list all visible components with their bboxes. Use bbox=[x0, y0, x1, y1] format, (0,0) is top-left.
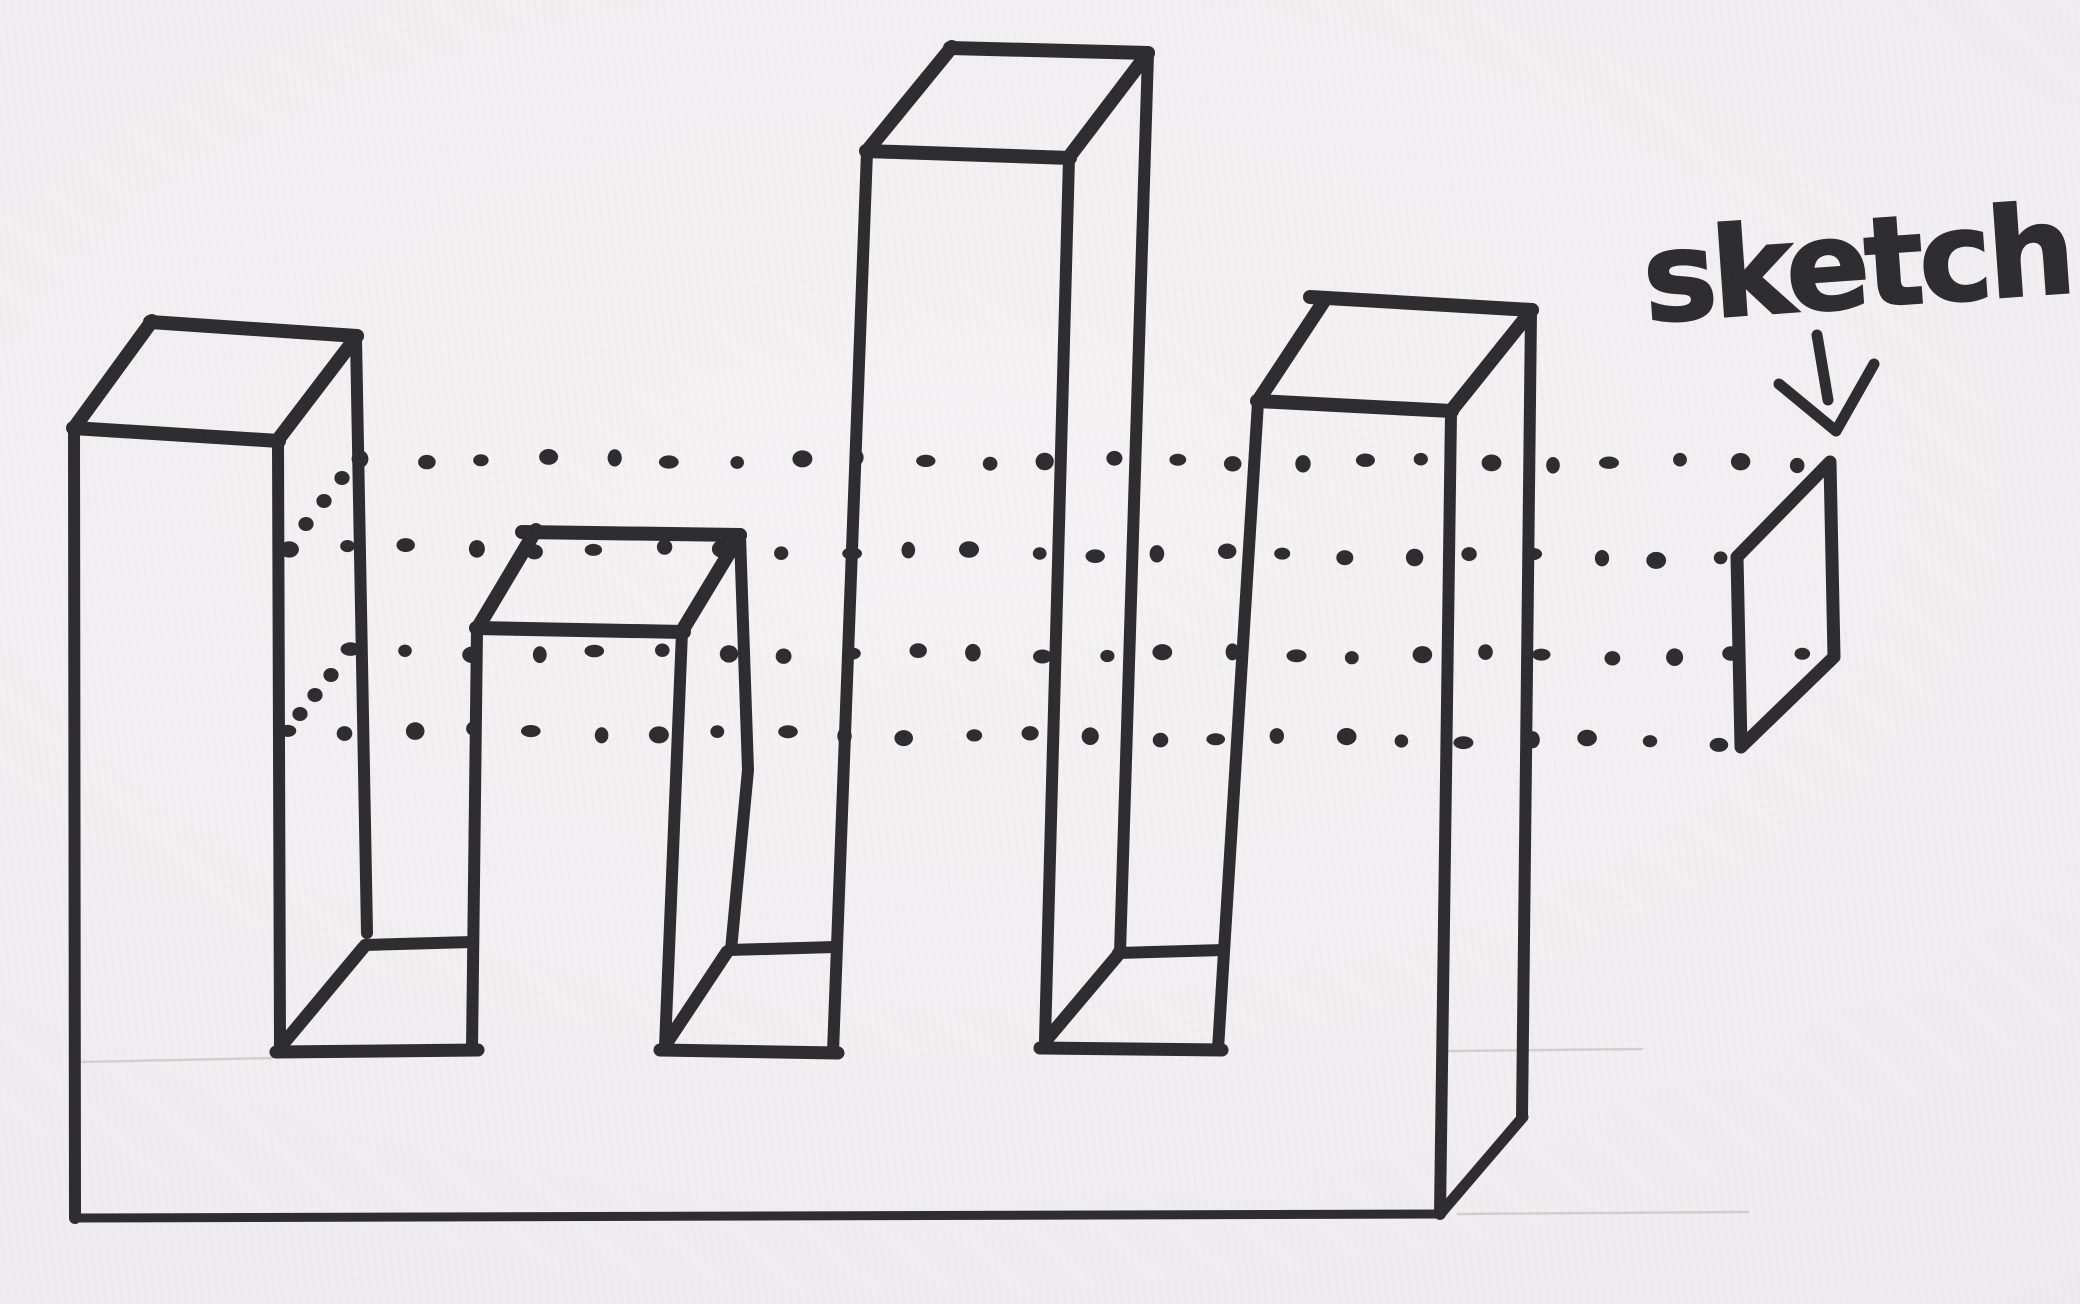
projection-dot bbox=[894, 730, 913, 746]
projection-dot bbox=[842, 547, 862, 559]
tower2-top-back-edge bbox=[522, 532, 740, 535]
projection-dot bbox=[1082, 727, 1099, 745]
tower4-top-back-edge bbox=[1310, 297, 1532, 310]
projection-dot bbox=[1206, 733, 1225, 745]
projection-dot bbox=[1673, 453, 1687, 467]
paper-background: sketch bbox=[0, 0, 2080, 1304]
tower2-front-left-edge bbox=[472, 629, 477, 1050]
projection-dot bbox=[659, 455, 679, 468]
projection-dot bbox=[910, 643, 927, 658]
projection-dot bbox=[1414, 453, 1428, 466]
notch3-floor-front-edge bbox=[1040, 1048, 1222, 1050]
tower4-front-right-and-base-right-edge bbox=[1440, 412, 1451, 1214]
projection-dot bbox=[1795, 648, 1811, 660]
projection-dot bbox=[526, 544, 543, 559]
projection-dot bbox=[1523, 548, 1542, 560]
projection-dot bbox=[352, 450, 369, 468]
projection-dot bbox=[1218, 544, 1236, 559]
projection-dot bbox=[1666, 648, 1683, 666]
notch2-floor-back-edge bbox=[729, 947, 835, 950]
tower3-top-back-edge bbox=[950, 48, 1148, 53]
tower2-top-left-edge bbox=[477, 530, 536, 629]
projection-dot bbox=[1646, 552, 1666, 569]
projection-dot bbox=[397, 538, 415, 552]
projection-dot bbox=[844, 648, 861, 660]
projection-dot bbox=[1100, 650, 1114, 662]
down-arrow-icon-shaft bbox=[1817, 335, 1828, 400]
tower1-top-left-edge bbox=[74, 321, 152, 428]
tower3-front-right-edge bbox=[1045, 158, 1069, 1040]
projection-dot bbox=[1152, 644, 1172, 660]
extrusion-sketch-diagram: sketch bbox=[0, 0, 2080, 1304]
projection-dot bbox=[595, 727, 609, 743]
projection-dot bbox=[280, 541, 299, 557]
projection-dot bbox=[1033, 650, 1052, 664]
projection-dot bbox=[1722, 646, 1739, 660]
projection-dot bbox=[657, 539, 672, 554]
projection-dot bbox=[292, 707, 307, 721]
projection-dot bbox=[712, 540, 731, 557]
projection-arc-top bbox=[298, 471, 349, 531]
projection-dot bbox=[916, 455, 935, 467]
projection-dot bbox=[837, 727, 851, 744]
projection-dot bbox=[710, 725, 724, 738]
projection-dot bbox=[1605, 651, 1621, 665]
projection-dot bbox=[1336, 550, 1353, 565]
projection-dot bbox=[1406, 549, 1423, 567]
projection-dot bbox=[1790, 458, 1805, 473]
projection-dot bbox=[1022, 726, 1039, 740]
projection-dots-row-3 bbox=[341, 642, 1811, 666]
projection-dot bbox=[1413, 646, 1433, 663]
tower3-top-left-edge bbox=[867, 47, 952, 151]
projection-dot bbox=[1287, 649, 1307, 662]
projection-dot bbox=[533, 646, 547, 663]
tower2-top-front-edge bbox=[476, 628, 684, 632]
pencil-guide-left bbox=[78, 1058, 272, 1062]
tower3-top-right-edge bbox=[1069, 53, 1148, 157]
tower2-front-right-edge bbox=[665, 632, 682, 1047]
notch1-floor-front-edge bbox=[276, 1050, 478, 1052]
projection-dot bbox=[902, 542, 916, 559]
projection-dot bbox=[983, 457, 998, 471]
projection-dot bbox=[1106, 451, 1122, 466]
projection-dot bbox=[1033, 547, 1047, 559]
projection-dot bbox=[1153, 733, 1169, 748]
projection-dot bbox=[1546, 457, 1560, 474]
sketch-plane-parallelogram bbox=[1737, 462, 1834, 747]
tower3-top-front-edge bbox=[866, 151, 1070, 158]
tower4-back-right-edge bbox=[1522, 311, 1531, 1117]
projection-dot bbox=[1274, 548, 1290, 560]
tower2-back-right-edge bbox=[731, 536, 748, 950]
notch1-floor-back-edge bbox=[365, 942, 472, 945]
tower3-front-left-edge bbox=[833, 152, 867, 1052]
projection-dots-row-1 bbox=[352, 449, 1805, 474]
projection-dot bbox=[1295, 455, 1310, 472]
projection-dot bbox=[521, 725, 541, 737]
projection-dot bbox=[418, 455, 436, 469]
notch2-floor-left-edge bbox=[666, 952, 727, 1044]
projection-dot bbox=[778, 725, 798, 738]
projection-dot bbox=[1036, 453, 1054, 471]
notch3-floor-left-edge bbox=[1048, 955, 1118, 1038]
sketch-label: sketch bbox=[1638, 178, 2075, 352]
projection-dot bbox=[1595, 550, 1609, 566]
projection-dot bbox=[337, 726, 353, 741]
projection-dot bbox=[1086, 549, 1105, 563]
projection-dot bbox=[1150, 545, 1165, 562]
base-bottom-right-edge bbox=[1440, 1117, 1523, 1214]
projection-dot bbox=[1731, 453, 1750, 470]
tower1-top-right-edge bbox=[277, 336, 357, 441]
projection-dot bbox=[585, 544, 602, 556]
tower4-top-front-edge bbox=[1257, 401, 1452, 411]
projection-dot bbox=[1478, 644, 1493, 660]
projection-dot bbox=[466, 722, 480, 736]
projection-dot bbox=[585, 645, 605, 658]
projection-dot bbox=[1714, 551, 1728, 564]
projection-dot bbox=[323, 668, 338, 682]
projection-dot bbox=[398, 645, 412, 657]
projection-dot bbox=[730, 456, 744, 469]
projection-dot bbox=[316, 494, 331, 508]
projection-dot bbox=[1337, 728, 1357, 745]
projection-dot bbox=[850, 449, 864, 465]
projection-dot bbox=[1526, 731, 1540, 748]
projection-dot bbox=[1710, 738, 1729, 752]
projection-dot bbox=[1356, 454, 1375, 467]
projection-dot bbox=[720, 645, 738, 662]
tower1-top-front-edge bbox=[73, 428, 279, 441]
projection-dot bbox=[655, 644, 670, 657]
tower2-top-right-edge bbox=[682, 535, 740, 631]
projection-dot bbox=[608, 449, 622, 466]
tower4-top-right-edge bbox=[1451, 310, 1532, 411]
projection-dot bbox=[341, 642, 361, 656]
projection-dot bbox=[1461, 547, 1476, 561]
tower1-back-right-edge bbox=[356, 338, 367, 933]
projection-dot bbox=[462, 647, 482, 664]
projection-dots-row-4 bbox=[279, 722, 1728, 752]
projection-dot bbox=[1599, 457, 1619, 469]
projection-arc-bottom bbox=[292, 668, 338, 721]
tower1-top-back-edge bbox=[150, 322, 357, 336]
tower4-front-left-edge bbox=[1218, 402, 1258, 1049]
projection-dot bbox=[340, 540, 355, 552]
tower3-back-right-edge bbox=[1120, 54, 1148, 953]
tower1-front-left-and-base-left-edge bbox=[74, 428, 75, 1218]
projection-dot bbox=[1226, 643, 1240, 660]
projection-dot bbox=[1224, 456, 1242, 471]
projection-dot bbox=[649, 726, 669, 743]
projection-dot bbox=[774, 546, 788, 560]
projection-dot bbox=[1453, 736, 1473, 749]
projection-dot bbox=[473, 454, 488, 466]
projection-dot bbox=[965, 644, 981, 662]
projection-dot bbox=[1643, 735, 1657, 747]
projection-dot bbox=[1169, 454, 1186, 466]
projection-dot bbox=[1270, 728, 1284, 744]
projection-dot bbox=[959, 541, 979, 558]
pencil-guide-right-bottom bbox=[1458, 1212, 1748, 1214]
projection-dot bbox=[792, 450, 812, 467]
projection-dot bbox=[406, 722, 425, 740]
notch3-floor-back-edge bbox=[1118, 950, 1224, 953]
projection-dot bbox=[298, 517, 313, 531]
projection-dot bbox=[1482, 455, 1502, 472]
projection-dot bbox=[539, 449, 558, 465]
notch2-floor-front-edge bbox=[660, 1050, 838, 1053]
projection-dot bbox=[279, 725, 296, 737]
projection-dot bbox=[776, 649, 792, 664]
projection-dot bbox=[1577, 730, 1597, 746]
projection-dot bbox=[1345, 651, 1359, 664]
pencil-guide-right-top bbox=[1448, 1049, 1642, 1051]
base-bottom-front-edge bbox=[74, 1214, 1441, 1218]
projection-dot bbox=[966, 729, 982, 741]
tower4-top-left-edge bbox=[1258, 298, 1326, 401]
notch1-floor-left-edge bbox=[283, 948, 363, 1044]
projection-dot bbox=[334, 471, 349, 485]
projection-dot bbox=[1532, 649, 1550, 661]
projection-dot bbox=[1395, 734, 1409, 747]
projection-dot bbox=[307, 688, 322, 702]
projection-dots-row-2 bbox=[280, 538, 1728, 569]
tower1-front-right-edge bbox=[278, 442, 280, 1047]
projection-dot bbox=[469, 540, 485, 558]
